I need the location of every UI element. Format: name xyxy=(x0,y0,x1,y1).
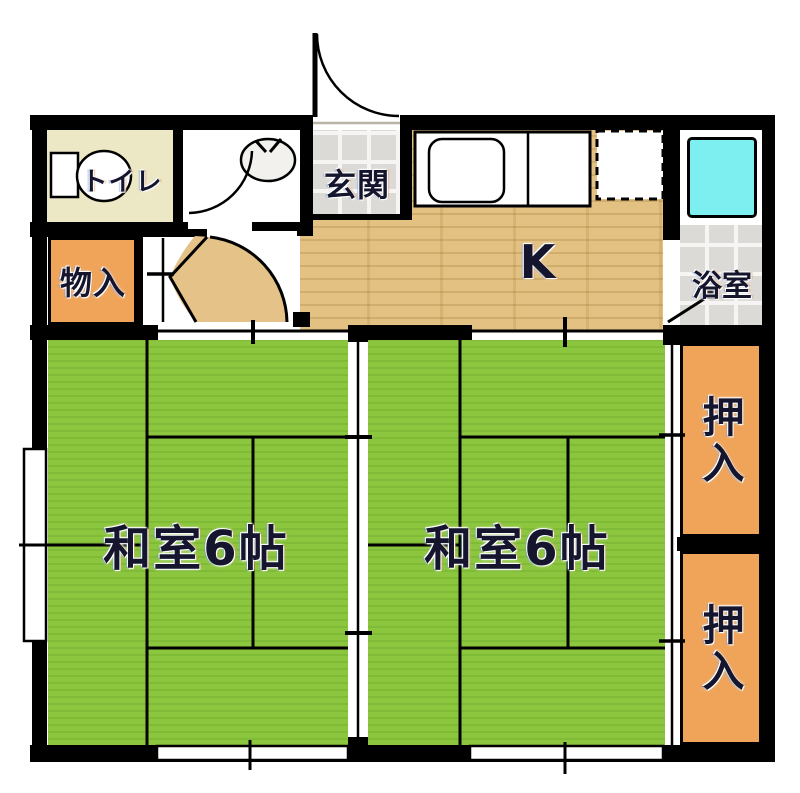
entrance-label: 玄関 xyxy=(324,160,390,206)
wall-storage-right xyxy=(135,237,143,325)
toilet-label: トイレ xyxy=(81,162,162,199)
floor-plan: トイレ 玄関 K 浴室 物入 和室6帖 和室6帖 押入 押入 xyxy=(0,0,800,793)
wall-hall-top xyxy=(143,229,207,237)
wall-left-lower xyxy=(32,641,47,762)
wall-toilet-washroom xyxy=(173,130,183,230)
storage-label: 物入 xyxy=(60,258,126,304)
washroom-floor xyxy=(183,130,300,233)
hall-closet-floor xyxy=(143,233,300,330)
wall-divider-stub-top xyxy=(348,325,368,342)
closet-upper-label: 押入 xyxy=(699,395,741,487)
bathtub xyxy=(687,137,757,218)
kitchen-label: K xyxy=(520,235,557,289)
wall-bottom xyxy=(30,745,775,762)
wall-band-left xyxy=(30,325,158,340)
bathroom-label: 浴室 xyxy=(692,261,752,305)
wall-closet-divider xyxy=(677,537,762,551)
fusuma-strip-rooms xyxy=(348,340,368,745)
wall-bifold-stub xyxy=(293,312,310,327)
wall-kitchen-bath xyxy=(663,130,680,240)
wall-right xyxy=(762,130,775,762)
tatami-left-label: 和室6帖 xyxy=(103,509,288,579)
wall-entrance-kitchen xyxy=(400,130,412,220)
wall-band-bath xyxy=(663,325,775,345)
wall-hall-top-stub xyxy=(297,226,313,236)
tatami-right-label: 和室6帖 xyxy=(424,509,609,579)
wall-left-upper xyxy=(32,130,47,449)
wall-divider-stub-bottom xyxy=(348,737,368,749)
entrance-door xyxy=(313,33,400,123)
closet-lower-label: 押入 xyxy=(699,603,741,695)
entrance-step-edge xyxy=(310,214,412,220)
wall-top-right xyxy=(400,115,775,130)
wall-top-left xyxy=(30,115,313,130)
